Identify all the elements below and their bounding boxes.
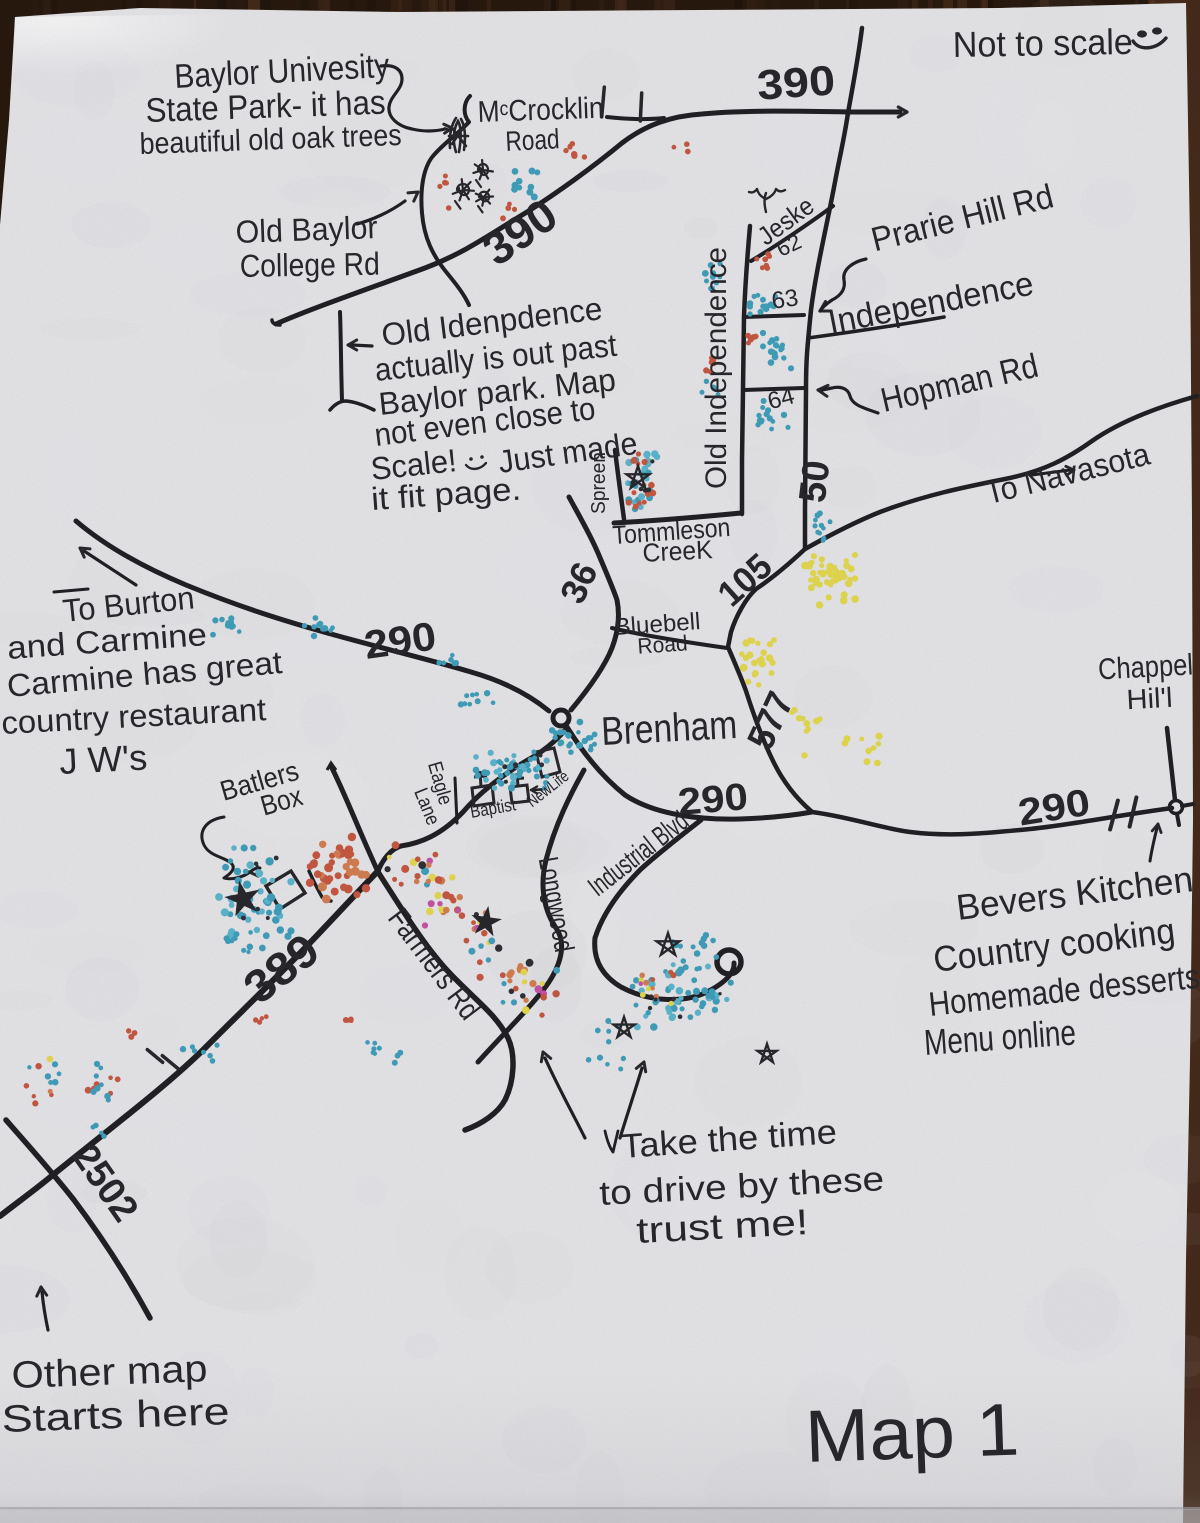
svg-text:Hil'l: Hil'l — [1126, 682, 1174, 715]
svg-text:290: 290 — [676, 776, 749, 824]
svg-text:Road: Road — [637, 630, 689, 658]
svg-text:J W's: J W's — [58, 736, 148, 782]
svg-text:Brenham: Brenham — [600, 703, 738, 754]
svg-text:Map 1: Map 1 — [804, 1388, 1021, 1478]
svg-text:College Rd: College Rd — [239, 246, 380, 284]
svg-text:CreeK: CreeK — [642, 534, 714, 568]
svg-text:Spreen: Spreen — [588, 452, 610, 514]
svg-text:Chappel: Chappel — [1097, 649, 1194, 687]
svg-text:Old Independence: Old Independence — [700, 247, 733, 489]
svg-text:390: 390 — [755, 56, 836, 108]
svg-text:Starts here: Starts here — [1, 1391, 230, 1441]
svg-text:Not to scale: Not to scale — [952, 21, 1133, 65]
svg-text:Road: Road — [505, 123, 561, 157]
svg-text:63: 63 — [770, 284, 800, 314]
svg-text:Other map: Other map — [11, 1348, 208, 1397]
svg-text:50: 50 — [792, 458, 839, 505]
svg-text:Old Baylor: Old Baylor — [235, 209, 378, 250]
